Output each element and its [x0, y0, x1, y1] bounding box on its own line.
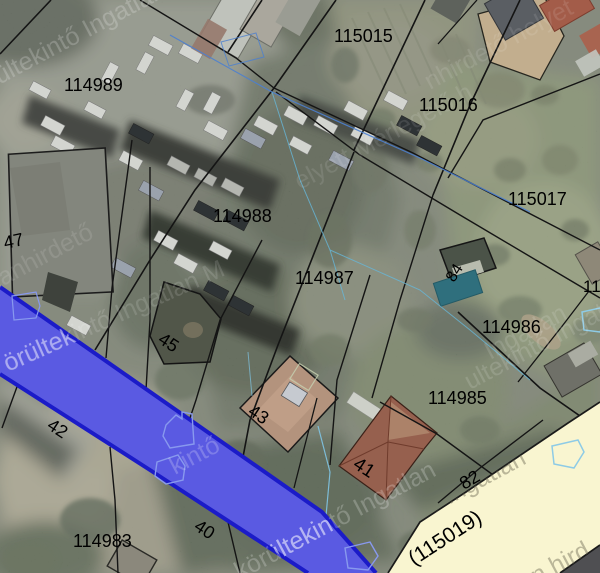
svg-text:114987: 114987 — [295, 268, 354, 288]
svg-text:115017: 115017 — [508, 189, 567, 209]
svg-text:114983: 114983 — [73, 531, 132, 551]
svg-text:47: 47 — [2, 229, 26, 253]
svg-text:114985: 114985 — [428, 388, 487, 408]
svg-text:115016: 115016 — [419, 95, 478, 115]
svg-text:114989: 114989 — [64, 75, 123, 95]
svg-text:114988: 114988 — [213, 206, 272, 226]
svg-text:114: 114 — [583, 277, 600, 296]
svg-text:114986: 114986 — [482, 317, 541, 337]
svg-text:115015: 115015 — [334, 26, 393, 46]
